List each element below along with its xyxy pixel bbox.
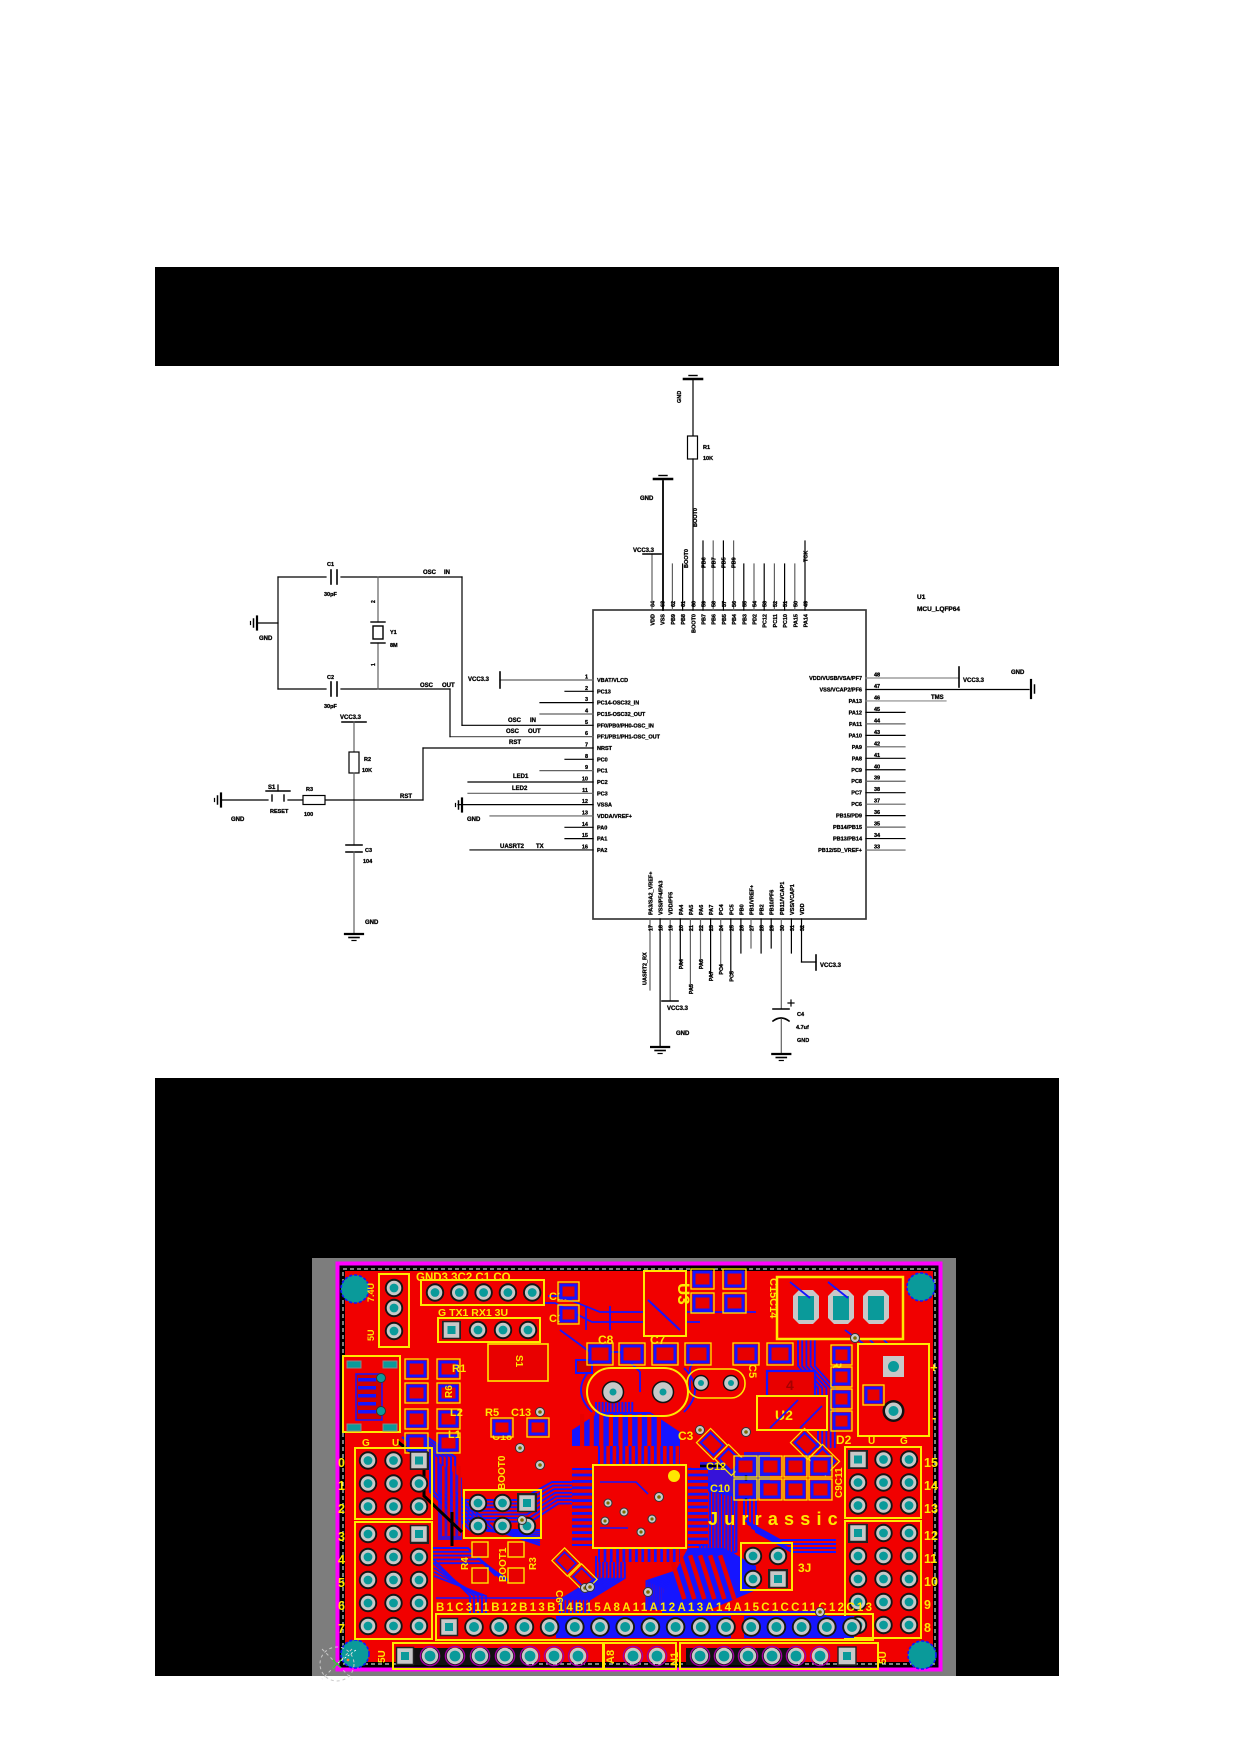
svg-text:R1: R1 <box>452 1363 466 1375</box>
svg-text:VDD/VUSB/VSA/PF7: VDD/VUSB/VSA/PF7 <box>809 676 862 682</box>
svg-text:VSS: VSS <box>661 614 667 625</box>
svg-text:PB7: PB7 <box>702 614 708 625</box>
svg-text:PB14/PB15: PB14/PB15 <box>833 825 862 831</box>
svg-text:PC12: PC12 <box>763 614 769 628</box>
svg-text:PB10/PF6: PB10/PF6 <box>770 890 776 915</box>
svg-text:OSC: OSC <box>420 683 434 689</box>
svg-text:PA13: PA13 <box>849 699 862 705</box>
svg-text:17: 17 <box>649 925 655 931</box>
svg-text:6: 6 <box>338 1599 345 1613</box>
svg-text:GND: GND <box>1011 670 1025 676</box>
svg-text:2: 2 <box>338 1502 345 1516</box>
svg-text:GND: GND <box>676 1031 690 1037</box>
svg-text:PA6: PA6 <box>699 905 705 915</box>
svg-text:PA14: PA14 <box>804 613 810 627</box>
svg-text:42: 42 <box>874 741 880 747</box>
svg-text:3: 3 <box>338 1530 345 1544</box>
svg-text:PA4: PA4 <box>679 904 685 915</box>
svg-text:30pF: 30pF <box>324 704 337 710</box>
svg-text:5U: 5U <box>366 1329 376 1341</box>
svg-text:8M: 8M <box>390 643 398 649</box>
svg-text:VDD: VDD <box>651 614 657 626</box>
svg-text:13: 13 <box>582 810 588 816</box>
svg-text:+: + <box>930 1360 938 1375</box>
svg-text:VSS/VCAP1: VSS/VCAP1 <box>790 884 796 915</box>
svg-text:R4: R4 <box>460 1557 471 1570</box>
svg-text:PC3: PC3 <box>597 791 608 797</box>
svg-text:GND: GND <box>259 636 273 642</box>
svg-text:29: 29 <box>770 925 776 931</box>
svg-text:21: 21 <box>689 925 695 931</box>
svg-text:PA6: PA6 <box>699 959 705 969</box>
svg-text:39: 39 <box>874 776 880 782</box>
svg-text:UASRT2_RX: UASRT2_RX <box>643 952 649 985</box>
svg-text:PC9: PC9 <box>851 768 862 774</box>
svg-text:NRST: NRST <box>597 746 613 752</box>
svg-text:C1: C1 <box>327 562 334 568</box>
svg-text:9: 9 <box>924 1598 931 1612</box>
svg-text:IN: IN <box>530 718 536 724</box>
svg-text:PA10: PA10 <box>849 733 862 739</box>
svg-text:31: 31 <box>790 925 796 931</box>
svg-text:19: 19 <box>669 925 675 931</box>
svg-text:PA15: PA15 <box>793 614 799 627</box>
svg-text:BOOT0: BOOT0 <box>497 1455 508 1490</box>
svg-text:10: 10 <box>582 776 588 782</box>
svg-text:GND: GND <box>231 817 245 823</box>
svg-text:OUT: OUT <box>442 683 455 689</box>
svg-text:58: 58 <box>712 601 718 607</box>
svg-text:PB2: PB2 <box>760 904 766 915</box>
svg-text:PA1: PA1 <box>597 837 607 843</box>
svg-text:R3: R3 <box>306 787 313 793</box>
svg-text:PB9: PB9 <box>732 557 738 568</box>
svg-text:PB13/PB14: PB13/PB14 <box>833 837 863 843</box>
svg-text:PF0/PB0/PH0-OSC_IN: PF0/PB0/PH0-OSC_IN <box>597 723 654 729</box>
svg-text:PA5: PA5 <box>689 984 695 994</box>
svg-text:7.4U: 7.4U <box>366 1283 376 1302</box>
svg-text:8: 8 <box>585 754 588 760</box>
svg-text:44: 44 <box>874 718 881 724</box>
svg-text:C4: C4 <box>797 1012 805 1018</box>
svg-text:33: 33 <box>874 845 880 851</box>
svg-text:28: 28 <box>760 925 766 931</box>
svg-text:3J: 3J <box>798 1561 811 1575</box>
svg-text:PC0: PC0 <box>597 757 608 763</box>
svg-text:55: 55 <box>742 601 748 607</box>
svg-text:PB6: PB6 <box>712 614 718 625</box>
svg-text:PB9: PB9 <box>671 614 677 625</box>
svg-text:PC10: PC10 <box>783 614 789 628</box>
svg-text:54: 54 <box>753 600 759 607</box>
svg-text:45: 45 <box>874 707 880 713</box>
svg-text:B1C311B12B13B14B15A8A11A12A13A: B1C311B12B13B14B15A8A11A12A13A14A15C1CC1… <box>436 1602 872 1614</box>
svg-text:PC14-OSC32_IN: PC14-OSC32_IN <box>597 701 639 707</box>
svg-text:OSC: OSC <box>423 570 437 576</box>
svg-text:5: 5 <box>585 720 588 726</box>
svg-text:1: 1 <box>585 675 588 681</box>
svg-text:VCC3.3: VCC3.3 <box>468 677 490 683</box>
svg-text:GND: GND <box>677 391 683 403</box>
svg-text:2: 2 <box>371 600 377 603</box>
svg-text:100: 100 <box>304 812 313 818</box>
svg-text:PB8: PB8 <box>681 614 687 625</box>
svg-text:14: 14 <box>924 1479 938 1493</box>
svg-text:VDDA/VREF+: VDDA/VREF+ <box>597 814 632 820</box>
svg-text:11: 11 <box>582 788 588 794</box>
svg-text:25: 25 <box>729 925 735 931</box>
svg-text:PA7: PA7 <box>709 971 715 981</box>
svg-text:15: 15 <box>924 1456 938 1470</box>
svg-text:D2: D2 <box>836 1433 852 1447</box>
svg-text:PC15-OSC32_OUT: PC15-OSC32_OUT <box>597 712 646 718</box>
svg-text:IN: IN <box>444 570 450 576</box>
svg-text:30: 30 <box>780 925 786 931</box>
svg-text:13: 13 <box>924 1502 938 1516</box>
svg-text:16: 16 <box>582 844 588 850</box>
svg-text:C2: C2 <box>327 675 334 681</box>
svg-text:GND: GND <box>365 920 379 926</box>
svg-text:R1: R1 <box>703 445 710 451</box>
svg-text:23: 23 <box>709 925 715 931</box>
svg-text:R6: R6 <box>444 1385 455 1398</box>
svg-text:60: 60 <box>691 601 697 607</box>
svg-text:VDD: VDD <box>800 903 806 915</box>
svg-text:35: 35 <box>874 822 880 828</box>
svg-text:3: 3 <box>585 697 588 703</box>
svg-text:53: 53 <box>763 601 769 607</box>
svg-text:OSC: OSC <box>508 718 522 724</box>
svg-text:PA3/SA2_VREF+: PA3/SA2_VREF+ <box>649 872 655 915</box>
svg-text:7: 7 <box>338 1622 345 1636</box>
svg-text:22: 22 <box>699 925 705 931</box>
svg-text:C8: C8 <box>598 1333 614 1347</box>
svg-text:57: 57 <box>722 601 728 607</box>
svg-text:GND: GND <box>467 817 481 823</box>
svg-text:51: 51 <box>783 601 789 607</box>
svg-text:5U: 5U <box>878 1651 889 1664</box>
svg-text:VBAT/VLCD: VBAT/VLCD <box>597 678 628 684</box>
svg-text:L1: L1 <box>448 1429 461 1441</box>
svg-text:4: 4 <box>786 1377 794 1393</box>
svg-text:27: 27 <box>750 925 756 931</box>
svg-text:PD2: PD2 <box>753 614 759 625</box>
svg-text:GND3.3C2 C1 CO: GND3.3C2 C1 CO <box>416 1272 511 1284</box>
svg-text:PA9: PA9 <box>852 745 862 751</box>
svg-text:PA5: PA5 <box>689 905 695 915</box>
svg-text:59: 59 <box>702 601 708 607</box>
svg-text:61: 61 <box>681 601 687 607</box>
svg-text:VCC3.3: VCC3.3 <box>340 715 362 721</box>
svg-text:G: G <box>362 1438 370 1449</box>
svg-text:PC2: PC2 <box>597 780 608 786</box>
svg-text:PC5: PC5 <box>729 904 735 915</box>
svg-text:PB3: PB3 <box>742 614 748 625</box>
svg-text:4.7uf: 4.7uf <box>796 1025 809 1031</box>
svg-text:C3: C3 <box>365 848 372 854</box>
svg-text:5: 5 <box>338 1576 345 1590</box>
svg-text:43: 43 <box>874 730 880 736</box>
svg-text:PC13: PC13 <box>597 689 611 695</box>
svg-text:PB6: PB6 <box>702 557 708 568</box>
svg-text:46: 46 <box>874 695 880 701</box>
svg-text:PA11: PA11 <box>849 722 862 728</box>
svg-text:U: U <box>868 1436 875 1447</box>
svg-text:VSS/PF4/PA3: VSS/PF4/PA3 <box>659 881 665 915</box>
svg-text:OSC: OSC <box>506 729 520 735</box>
svg-text:S1: S1 <box>513 1355 524 1368</box>
svg-text:104: 104 <box>363 859 373 865</box>
svg-text:30pF: 30pF <box>324 592 337 598</box>
svg-text:4: 4 <box>338 1553 345 1567</box>
svg-text:R3: R3 <box>528 1557 539 1570</box>
svg-text:38: 38 <box>874 787 880 793</box>
svg-text:32: 32 <box>800 925 806 931</box>
svg-text:C5: C5 <box>746 1364 758 1378</box>
svg-text:VSSA: VSSA <box>597 803 612 809</box>
svg-text:GND: GND <box>797 1038 809 1044</box>
svg-text:PA12: PA12 <box>849 710 862 716</box>
svg-text:62: 62 <box>671 601 677 607</box>
svg-text:VCC3.3: VCC3.3 <box>820 963 842 969</box>
svg-text:PB5: PB5 <box>722 614 728 625</box>
svg-text:TMS: TMS <box>931 695 944 701</box>
svg-text:UASRT2: UASRT2 <box>500 844 525 850</box>
svg-text:2: 2 <box>585 686 588 692</box>
svg-text:Jurrassic: Jurrassic <box>708 1509 844 1529</box>
svg-text:56: 56 <box>732 601 738 607</box>
svg-text:0: 0 <box>338 1456 345 1470</box>
svg-text:PA2: PA2 <box>597 848 607 854</box>
svg-text:PB15/PD9: PB15/PD9 <box>836 814 862 820</box>
svg-text:Y1: Y1 <box>390 630 397 636</box>
svg-text:PA0: PA0 <box>597 825 607 831</box>
svg-text:-: - <box>932 1410 936 1425</box>
svg-text:9: 9 <box>585 765 588 771</box>
svg-text:5U: 5U <box>377 1650 388 1663</box>
svg-text:48: 48 <box>874 673 880 679</box>
svg-text:PB5: PB5 <box>722 557 728 568</box>
svg-text:PC4: PC4 <box>719 903 725 915</box>
svg-text:41: 41 <box>874 753 880 759</box>
svg-text:VDD/PF5: VDD/PF5 <box>669 892 675 915</box>
svg-text:10: 10 <box>924 1575 938 1589</box>
svg-text:12: 12 <box>924 1529 938 1543</box>
svg-text:PC5: PC5 <box>729 971 735 982</box>
svg-text:R5: R5 <box>485 1407 499 1419</box>
svg-text:40: 40 <box>874 764 880 770</box>
svg-text:PF1/PB1/PH1-OSC_OUT: PF1/PB1/PH1-OSC_OUT <box>597 735 661 741</box>
svg-text:24: 24 <box>719 924 725 931</box>
svg-text:VCC3.3: VCC3.3 <box>667 1006 689 1012</box>
svg-text:PC6: PC6 <box>851 802 862 808</box>
svg-text:U1: U1 <box>917 594 926 601</box>
svg-text:PA4: PA4 <box>679 958 685 969</box>
svg-text:1: 1 <box>338 1479 345 1493</box>
svg-text:20: 20 <box>679 925 685 931</box>
svg-text:R2: R2 <box>364 757 371 763</box>
svg-text:PA7: PA7 <box>709 905 715 915</box>
svg-text:PC8: PC8 <box>851 779 862 785</box>
svg-text:LED1: LED1 <box>513 774 529 780</box>
svg-text:TCK: TCK <box>804 551 810 562</box>
svg-text:1: 1 <box>371 663 377 666</box>
svg-text:50: 50 <box>793 601 799 607</box>
svg-text:PC7: PC7 <box>851 791 862 797</box>
svg-text:C3: C3 <box>678 1429 694 1443</box>
svg-text:PB4: PB4 <box>732 613 738 625</box>
svg-text:LED2: LED2 <box>512 786 528 792</box>
svg-text:18: 18 <box>659 925 665 931</box>
svg-text:8: 8 <box>924 1621 931 1635</box>
svg-text:RST: RST <box>400 794 412 800</box>
svg-text:G: G <box>900 1436 908 1447</box>
svg-text:PB1/VREF+: PB1/VREF+ <box>750 885 756 915</box>
svg-text:PB12/SD_VREF+: PB12/SD_VREF+ <box>818 848 862 854</box>
svg-text:52: 52 <box>773 601 779 607</box>
svg-text:VSS/VCAP2/PF6: VSS/VCAP2/PF6 <box>820 687 863 693</box>
svg-text:BOOT0: BOOT0 <box>693 508 699 527</box>
svg-text:C13: C13 <box>511 1407 531 1419</box>
svg-text:OUT: OUT <box>528 729 541 735</box>
svg-text:PB7: PB7 <box>712 557 718 568</box>
svg-text:C9C11: C9C11 <box>834 1467 845 1498</box>
svg-text:VCC3.3: VCC3.3 <box>963 678 985 684</box>
svg-text:PB0: PB0 <box>739 904 745 915</box>
svg-text:MCU_LQFP64: MCU_LQFP64 <box>917 606 960 613</box>
svg-text:11: 11 <box>924 1552 937 1566</box>
svg-text:RST: RST <box>509 740 521 746</box>
svg-text:7: 7 <box>585 742 588 748</box>
svg-text:BOOT0: BOOT0 <box>691 614 697 633</box>
svg-text:PB11/VCAP1: PB11/VCAP1 <box>780 882 786 915</box>
svg-text:47: 47 <box>874 684 880 690</box>
svg-text:26: 26 <box>739 925 745 931</box>
svg-text:PA8: PA8 <box>852 756 862 762</box>
svg-text:36: 36 <box>874 810 880 816</box>
svg-text:C12: C12 <box>706 1461 726 1473</box>
svg-text:BOOT0: BOOT0 <box>684 549 690 568</box>
svg-text:PC1: PC1 <box>597 769 608 775</box>
svg-text:L2: L2 <box>450 1407 463 1419</box>
svg-text:PC11: PC11 <box>773 614 779 627</box>
svg-text:GND: GND <box>640 496 654 502</box>
svg-text:S1: S1 <box>268 785 276 791</box>
svg-text:A8: A8 <box>605 1650 617 1664</box>
svg-text:U: U <box>392 1438 399 1449</box>
svg-text:15: 15 <box>582 833 588 839</box>
svg-text:TX: TX <box>536 844 544 850</box>
svg-text:N1: N1 <box>669 1652 681 1666</box>
svg-text:PC4: PC4 <box>719 963 725 975</box>
svg-text:C10: C10 <box>710 1483 730 1495</box>
svg-text:10K: 10K <box>362 768 372 774</box>
svg-text:12: 12 <box>582 799 588 805</box>
svg-text:VCC3.3: VCC3.3 <box>633 548 655 554</box>
svg-text:37: 37 <box>874 799 880 805</box>
svg-text:34: 34 <box>874 833 881 839</box>
svg-text:14: 14 <box>582 822 589 828</box>
svg-text:10K: 10K <box>703 456 713 462</box>
svg-text:49: 49 <box>804 601 810 607</box>
svg-text:U3: U3 <box>674 1283 693 1305</box>
svg-text:RESET: RESET <box>270 809 289 815</box>
svg-text:6: 6 <box>585 731 588 737</box>
